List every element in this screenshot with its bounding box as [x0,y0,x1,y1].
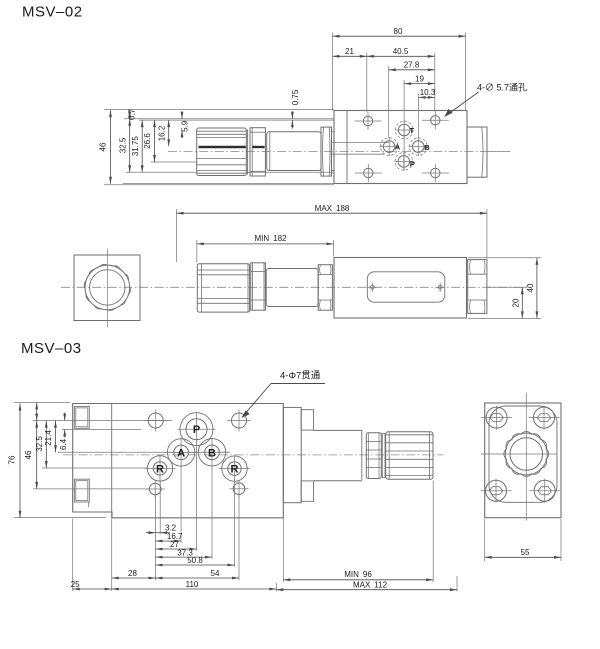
svg-text:32.5: 32.5 [118,137,127,153]
svg-text:32.5: 32.5 [35,436,44,452]
svg-text:MAX 188: MAX 188 [315,204,350,213]
svg-text:4-∅ 5.7通孔: 4-∅ 5.7通孔 [477,83,527,93]
svg-text:5.9: 5.9 [180,120,189,132]
svg-text:76: 76 [8,455,17,464]
svg-text:4-Φ7贯通: 4-Φ7贯通 [280,371,321,382]
svg-text:21: 21 [345,47,354,56]
svg-text:P: P [410,159,415,168]
svg-text:16.2: 16.2 [157,125,166,141]
svg-text:54: 54 [211,569,220,578]
svg-text:6.7: 6.7 [128,108,137,120]
svg-text:MSV–02: MSV–02 [22,4,83,21]
svg-text:A: A [177,447,185,459]
svg-text:46: 46 [24,450,33,459]
svg-text:19: 19 [415,74,424,83]
svg-text:31.75: 31.75 [131,136,140,157]
svg-text:T: T [410,126,415,135]
svg-text:B: B [424,143,430,152]
svg-text:B: B [208,447,216,459]
svg-text:40.5: 40.5 [393,47,409,56]
svg-text:0.75: 0.75 [291,89,300,105]
svg-text:20: 20 [512,298,521,307]
svg-text:21.4: 21.4 [44,430,53,446]
svg-text:26.6: 26.6 [143,133,152,149]
svg-text:3.2: 3.2 [165,524,177,533]
svg-text:MIN 182: MIN 182 [254,234,287,243]
svg-text:10.3: 10.3 [420,88,436,97]
svg-text:25: 25 [71,580,80,589]
svg-text:110: 110 [186,580,199,589]
svg-text:50.8: 50.8 [187,556,203,565]
svg-text:A: A [395,143,401,152]
svg-text:6.4: 6.4 [59,438,68,450]
svg-text:R: R [156,463,164,475]
svg-text:27.8: 27.8 [404,61,420,70]
svg-text:55: 55 [521,548,530,557]
svg-text:P: P [193,424,200,436]
svg-text:R: R [231,464,239,476]
svg-text:MAX 112: MAX 112 [353,581,388,590]
svg-text:28: 28 [128,569,137,578]
svg-text:MSV–03: MSV–03 [21,340,82,357]
svg-text:40: 40 [526,283,535,292]
svg-text:46: 46 [99,142,108,151]
svg-text:80: 80 [394,27,403,36]
svg-text:MIN 96: MIN 96 [344,570,372,579]
